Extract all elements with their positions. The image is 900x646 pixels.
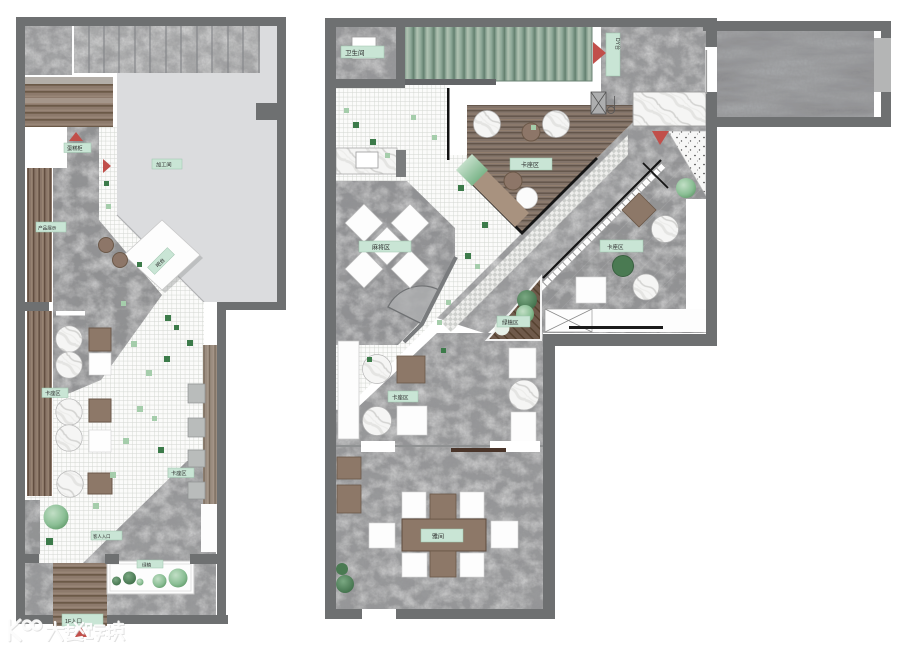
svg-text:绿植区: 绿植区 [502,319,519,327]
svg-text:麻将区: 麻将区 [372,244,390,252]
svg-text:卫生间: 卫生间 [345,48,365,57]
svg-text:卡座区: 卡座区 [392,394,409,402]
svg-text:DY台: DY台 [614,38,621,50]
svg-text:客人入口: 客人入口 [93,533,111,540]
svg-text:产品展示: 产品展示 [38,225,57,232]
svg-text:加工间: 加工间 [156,161,172,169]
svg-text:卡座区: 卡座区 [607,243,624,251]
svg-text:卡座区: 卡座区 [521,161,539,169]
svg-text:卡座区: 卡座区 [45,389,61,397]
svg-text:雅间: 雅间 [432,533,444,541]
svg-text:绿植: 绿植 [142,562,152,569]
svg-text:蛋糕柜: 蛋糕柜 [67,144,83,152]
svg-text:卡座区: 卡座区 [171,469,187,477]
